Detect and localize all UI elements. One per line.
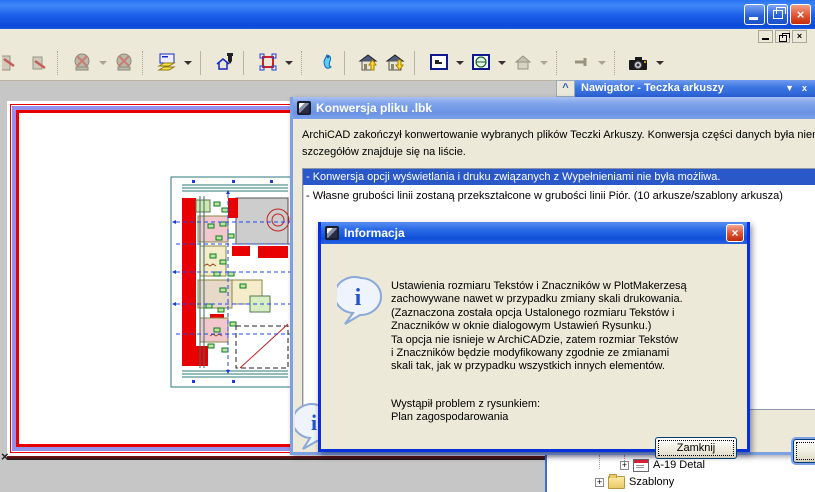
dropdown-icon[interactable] xyxy=(456,61,464,65)
mdi-minimize-button[interactable] xyxy=(758,30,773,43)
focus-rect xyxy=(796,442,815,460)
dropdown-icon[interactable] xyxy=(285,61,293,65)
tree-connector xyxy=(599,455,600,469)
svg-text:i: i xyxy=(355,285,362,311)
toolbar-separator xyxy=(57,51,64,75)
dropdown-disabled-icon[interactable] xyxy=(598,61,606,65)
informacja-message: Ustawienia rozmiaru Tekstów i Znaczników… xyxy=(391,280,687,374)
navigator-titlebar[interactable]: Nawigator - Teczka arkuszy ▼ x xyxy=(575,80,815,97)
message-line: skali tak, jak w przypadku wszystkich in… xyxy=(391,360,687,373)
problem-message: Wystąpił problem z rysunkiem: Plan zagos… xyxy=(391,398,540,425)
dialog-close-button[interactable]: × xyxy=(726,224,744,242)
mdi-close-button[interactable]: × xyxy=(792,30,807,43)
minimize-button[interactable] xyxy=(744,4,765,25)
focus-rect xyxy=(658,440,734,456)
dropdown-icon[interactable] xyxy=(184,61,192,65)
toolbar-separator xyxy=(301,51,308,75)
toolbar-separator xyxy=(142,51,149,75)
message-line: Znaczników w oknie dialogowym Ustawień R… xyxy=(391,320,687,333)
mdi-restore-button[interactable] xyxy=(775,30,790,43)
navigator-close-icon[interactable]: x xyxy=(802,80,807,97)
navigator-collapse-button[interactable]: ^ xyxy=(556,80,575,97)
main-titlebar: × xyxy=(0,0,815,29)
tree-item-a19-detal[interactable]: + A-19 Detal xyxy=(620,457,705,473)
layers-icon[interactable] xyxy=(155,51,179,75)
message-line: (Zaznaczona została opcja Ustalonego roz… xyxy=(391,307,687,320)
restore-button[interactable] xyxy=(767,4,788,25)
house-arrow-down-icon[interactable] xyxy=(384,51,408,75)
message-line: zachowywane nawet w przypadku zmiany ska… xyxy=(391,293,687,306)
toolbar-separator xyxy=(344,51,351,75)
expand-plus-icon[interactable]: + xyxy=(620,461,629,470)
dialog-informacja-titlebar[interactable]: Informacja × xyxy=(321,222,747,244)
stamp-disabled-icon[interactable] xyxy=(70,51,94,75)
menu-row: × xyxy=(0,29,815,46)
message-line: Ta opcja nie isnieje w ArchiCADzie, zate… xyxy=(391,334,687,347)
archicad-app: { "window": { "controls": {"minimize": "… xyxy=(0,0,815,492)
toolbar-separator xyxy=(200,51,207,75)
doc-partial-left-icon[interactable] xyxy=(0,51,24,75)
expand-plus-icon[interactable]: + xyxy=(595,478,604,487)
mdi-window-controls: × xyxy=(758,30,807,43)
page-shadow xyxy=(7,456,547,460)
house-arrow-up-icon[interactable] xyxy=(357,51,381,75)
tree-item-szablony[interactable]: + Szablony xyxy=(595,474,674,490)
dialog-konwersja-title: Konwersja pliku .lbk xyxy=(316,101,815,115)
camera-icon[interactable] xyxy=(627,51,651,75)
house-plumb-icon[interactable] xyxy=(213,51,237,75)
site-plan-drawing xyxy=(170,176,300,388)
mdi-restore-icon xyxy=(779,35,787,42)
toolbar-separator xyxy=(556,51,563,75)
folder-icon xyxy=(608,476,625,489)
close-icon: × xyxy=(797,7,805,22)
mdi-minimize-icon xyxy=(762,38,769,40)
archicad-icon xyxy=(297,101,311,115)
close-icon: × xyxy=(731,226,738,240)
problem-line2: Plan zagospodarowania xyxy=(391,411,540,424)
problem-line1: Wystąpił problem z rysunkiem: xyxy=(391,398,540,411)
dialog-informacja-body: i Ustawienia rozmiaru Tekstów i Znacznik… xyxy=(321,244,747,446)
tree-item-label: A-19 Detal xyxy=(653,459,705,471)
dropdown-icon[interactable] xyxy=(656,61,664,65)
doc-partial-right-icon[interactable] xyxy=(27,51,51,75)
dialog-konwersja-titlebar[interactable]: Konwersja pliku .lbk xyxy=(293,97,815,119)
list-item[interactable]: - Własne grubości linii zostaną przekszt… xyxy=(303,188,815,204)
stamp2-disabled-icon[interactable] xyxy=(112,51,136,75)
navigator-title: Nawigator - Teczka arkuszy xyxy=(581,80,785,97)
close-button[interactable]: × xyxy=(790,4,811,25)
marquee-icon[interactable] xyxy=(256,51,280,75)
konwersja-ok-button-partial[interactable] xyxy=(793,439,815,463)
seahorse-icon[interactable] xyxy=(314,51,338,75)
zamknij-button[interactable]: Zamknij xyxy=(655,437,737,459)
list-item-selected[interactable]: - Konwersja opcji wyświetlania i druku z… xyxy=(303,169,815,185)
conversion-message-line1: ArchiCAD zakończył konwertowanie wybrany… xyxy=(302,128,815,143)
dialog-informacja-title: Informacja xyxy=(344,226,721,240)
chevron-up-icon: ^ xyxy=(562,82,568,94)
dropdown-disabled-icon[interactable] xyxy=(99,61,107,65)
dialog-informacja: Informacja × i Ustawienia rozmiaru Tekst… xyxy=(318,222,750,452)
message-line: i Znaczników będzie modyfikowany zgodnie… xyxy=(391,347,687,360)
globe-icon[interactable] xyxy=(469,51,493,75)
window-controls: × xyxy=(744,4,811,25)
svg-text:i: i xyxy=(311,410,317,435)
info-bubble-icon: i xyxy=(337,276,385,326)
message-line: Ustawienia rozmiaru Tekstów i Znaczników… xyxy=(391,280,687,293)
toolbar-separator xyxy=(243,51,250,75)
section-disabled-icon[interactable] xyxy=(569,51,593,75)
minimize-icon xyxy=(749,17,758,20)
navigator-tree-panel: + A-19 Detal + Szablony xyxy=(545,455,815,492)
toolbar xyxy=(0,45,815,81)
toolbar-separator xyxy=(414,51,421,75)
archicad-icon xyxy=(325,226,339,240)
toolbar-separator xyxy=(614,51,621,75)
model-disabled-icon[interactable] xyxy=(511,51,535,75)
navigator-dropdown-icon[interactable]: ▼ xyxy=(785,80,794,97)
conversion-message-line2: szczegółów znajduje się na liście. xyxy=(302,145,466,160)
dropdown-icon[interactable] xyxy=(498,61,506,65)
layout-sheet-icon[interactable] xyxy=(427,51,451,75)
mdi-close-icon: × xyxy=(797,31,802,41)
origin-marker: × xyxy=(1,449,9,464)
dropdown-disabled-icon[interactable] xyxy=(540,61,548,65)
tree-item-label: Szablony xyxy=(629,476,674,488)
restore-icon xyxy=(773,10,783,19)
sheet-icon xyxy=(633,459,649,472)
